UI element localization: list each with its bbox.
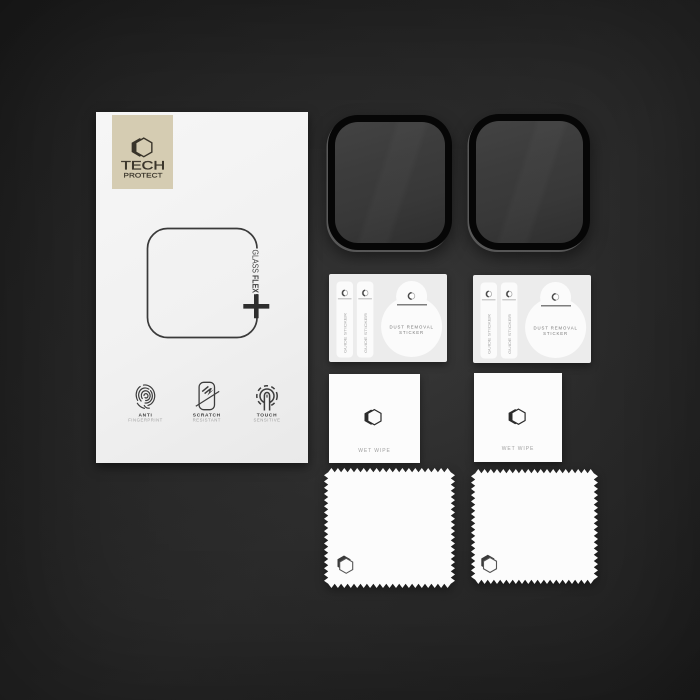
svg-text:GLASS FLEX: GLASS FLEX: [251, 250, 260, 294]
svg-text:FINGERPRINT: FINGERPRINT: [128, 418, 163, 423]
svg-text:PROTECT: PROTECT: [124, 173, 163, 180]
svg-text:GUIDE STICKER: GUIDE STICKER: [344, 313, 348, 353]
svg-text:RESISTANT: RESISTANT: [193, 418, 221, 423]
svg-text:GUIDE STICKER: GUIDE STICKER: [488, 314, 492, 354]
svg-text:TECH: TECH: [121, 159, 165, 173]
svg-text:DUST REMOVAL: DUST REMOVAL: [533, 326, 577, 331]
svg-text:STICKER: STICKER: [543, 331, 568, 336]
svg-text:GUIDE STICKER: GUIDE STICKER: [364, 313, 368, 353]
svg-text:SENSITIVE: SENSITIVE: [254, 418, 281, 423]
svg-text:DUST REMOVAL: DUST REMOVAL: [389, 325, 433, 330]
svg-text:STICKER: STICKER: [399, 330, 424, 335]
svg-text:GUIDE STICKER: GUIDE STICKER: [508, 314, 512, 354]
